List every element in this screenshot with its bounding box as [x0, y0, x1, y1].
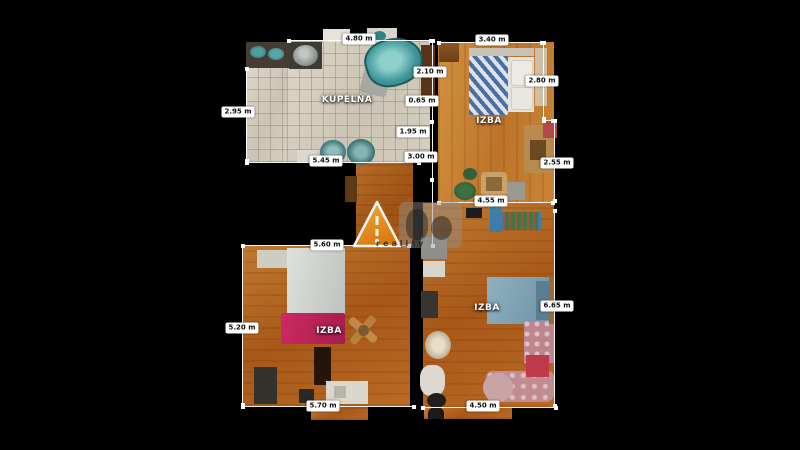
measure-tick	[430, 120, 434, 124]
floor-lamp	[425, 331, 451, 359]
dark-stool	[427, 393, 446, 408]
plant	[463, 168, 477, 180]
nightstand	[257, 250, 288, 268]
measurement-chip-br-bottom: 4.50 m	[466, 401, 499, 412]
wardrobe	[439, 43, 459, 62]
sink-bowl	[250, 46, 266, 58]
storage-box	[507, 182, 525, 200]
red-cushion	[526, 355, 549, 377]
measurement-chip-bathroom-top: 4.80 m	[342, 34, 375, 45]
measurement-chip-bathroom-bottom: 5.45 m	[309, 156, 342, 167]
floorplan-canvas[interactable]: KÚPEĽŇA IZBA IZBA IZBA 4.80 m 2.95 m 5.4…	[0, 0, 800, 450]
room-label-bedroom-br: IZBA	[474, 303, 500, 313]
measurement-chip-tr-top: 3.40 m	[475, 35, 508, 46]
washing-machine-drum	[293, 45, 318, 66]
shelf-white	[423, 261, 445, 277]
watermark-glyph	[431, 216, 452, 240]
dark-object	[428, 407, 444, 419]
measurement-chip-mid-4: 3.00 m	[404, 152, 437, 163]
bed-headboard	[469, 48, 534, 56]
toy-board	[500, 212, 541, 230]
chair-seat	[486, 177, 502, 191]
measurement-chip-bl-top: 5.60 m	[310, 240, 343, 251]
sink-bowl	[268, 48, 284, 60]
watermark-reality-text: reality	[376, 239, 426, 248]
ceiling-fan-hub	[358, 325, 369, 336]
cabinet-item	[334, 386, 346, 398]
measurement-chip-tr-bottom: 4.55 m	[474, 196, 507, 207]
dark-unit	[421, 291, 438, 318]
couch-round-arm	[483, 373, 513, 402]
measurement-chip-tr-right-upper: 2.80 m	[525, 76, 558, 87]
measure-tick	[430, 178, 434, 182]
room-label-bathroom: KÚPEĽŇA	[322, 95, 373, 105]
plant	[454, 182, 476, 200]
measurement-chip-mid-2: 0.65 m	[405, 96, 438, 107]
bed-sheet	[287, 248, 345, 316]
measurement-chip-mid-1: 2.10 m	[413, 67, 446, 78]
pillow	[511, 87, 533, 110]
pillow	[420, 365, 445, 396]
dark-box	[466, 208, 482, 218]
watermark-glyph	[406, 209, 428, 240]
room-label-bedroom-bl: IZBA	[316, 326, 342, 336]
measurement-chip-br-right: 6.65 m	[540, 301, 573, 312]
room-label-bedroom-tr: IZBA	[476, 116, 502, 126]
measurement-chip-bl-bottom: 5.70 m	[306, 401, 339, 412]
measurement-chip-mid-3: 1.95 m	[396, 127, 429, 138]
doorway-opening	[314, 347, 331, 385]
measurement-chip-bathroom-left: 2.95 m	[221, 107, 254, 118]
measurement-chip-tr-right-lower: 2.55 m	[540, 158, 573, 169]
measurement-chip-bl-left: 5.20 m	[225, 323, 258, 334]
bed-striped-blanket	[469, 56, 508, 115]
dark-furniture	[254, 367, 277, 404]
